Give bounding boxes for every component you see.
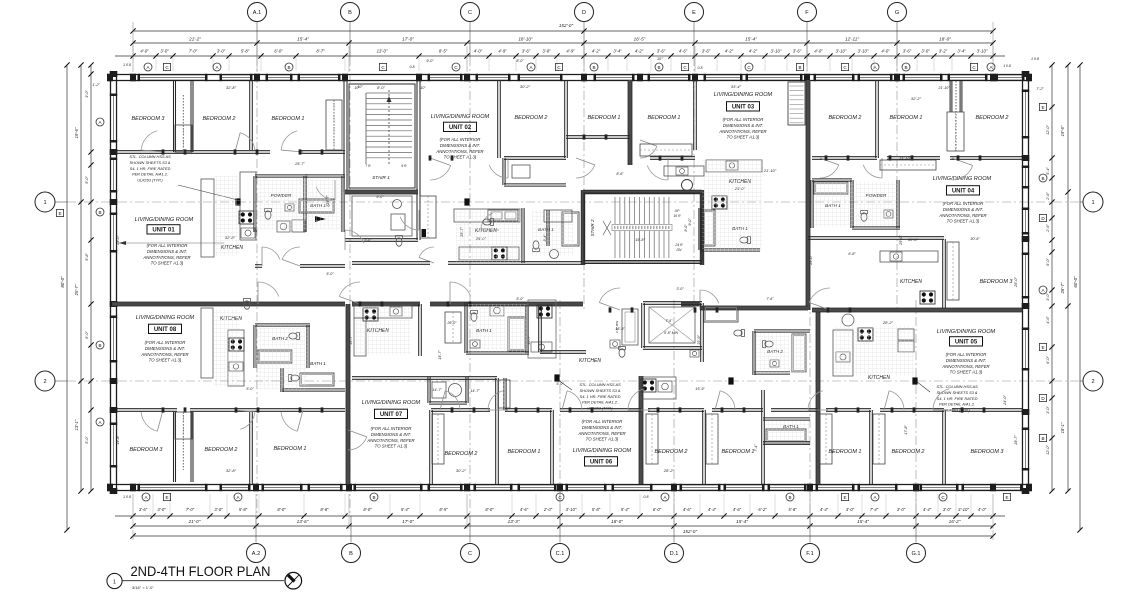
svg-text:ANNOTATIONS, REFER: ANNOTATIONS, REFER <box>718 129 766 134</box>
svg-text:7'-0": 7'-0" <box>186 507 195 512</box>
svg-text:4'-2": 4'-2" <box>749 49 758 54</box>
svg-text:LIVING/DINING ROOM: LIVING/DINING ROOM <box>362 400 421 406</box>
svg-text:32'-8": 32'-8" <box>226 85 237 90</box>
svg-text:24'-0": 24'-0" <box>809 255 813 266</box>
svg-text:6'-0": 6'-0" <box>1046 356 1050 364</box>
svg-text:9'-0": 9'-0" <box>426 59 434 63</box>
svg-text:5'-8": 5'-8" <box>239 507 248 512</box>
svg-text:ANNOTATIONS, REFER: ANNOTATIONS, REFER <box>577 431 625 436</box>
svg-text:5'-8" MIN: 5'-8" MIN <box>664 331 678 335</box>
svg-text:4'-0": 4'-0" <box>978 507 987 512</box>
svg-text:BEDROOM 2: BEDROOM 2 <box>202 116 235 122</box>
svg-text:E: E <box>843 495 846 500</box>
svg-text:4'-6": 4'-6" <box>683 507 692 512</box>
svg-text:8'-6": 8'-6" <box>616 172 624 176</box>
svg-text:18'-0": 18'-0" <box>611 519 623 524</box>
svg-text:2'-6": 2'-6" <box>1046 192 1050 201</box>
svg-text:ANNOTATIONS, REFER: ANNOTATIONS, REFER <box>435 149 483 154</box>
svg-text:BEDROOM 1: BEDROOM 1 <box>647 115 680 121</box>
svg-text:15'-8": 15'-8" <box>615 327 625 331</box>
svg-text:UNIT 02: UNIT 02 <box>449 125 472 131</box>
svg-text:4'-2": 4'-2" <box>635 49 644 54</box>
svg-text:C.1: C.1 <box>556 551 565 557</box>
svg-text:5'-8": 5'-8" <box>241 49 250 54</box>
svg-text:12'-11": 12'-11" <box>845 37 859 42</box>
svg-text:E: E <box>165 495 168 500</box>
svg-text:17'-8": 17'-8" <box>904 425 908 435</box>
svg-text:8'-7": 8'-7" <box>316 49 325 54</box>
svg-text:16'-5": 16'-5" <box>634 37 646 42</box>
svg-text:B: B <box>788 495 791 500</box>
svg-text:15'-4": 15'-4" <box>857 519 869 524</box>
svg-text:8'-0": 8'-0" <box>516 59 524 63</box>
svg-text:TO SHEET A1.3): TO SHEET A1.3) <box>149 358 182 363</box>
svg-text:ANNOTATIONS, REFER: ANNOTATIONS, REFER <box>140 352 188 357</box>
svg-text:5'-8": 5'-8" <box>592 507 601 512</box>
svg-text:33'-4": 33'-4" <box>731 84 742 89</box>
svg-text:F: F <box>805 10 809 16</box>
svg-text:28'-2": 28'-2" <box>882 320 894 325</box>
svg-text:C: C <box>468 551 472 557</box>
svg-text:21'-2": 21'-2" <box>188 37 201 42</box>
svg-text:25'-0": 25'-0" <box>1014 277 1018 288</box>
svg-text:10": 10" <box>357 85 363 89</box>
svg-text:ANNOTATIONS, REFER: ANNOTATIONS, REFER <box>941 364 989 369</box>
svg-text:6'-2": 6'-2" <box>758 507 767 512</box>
svg-text:6'-0": 6'-0" <box>1046 258 1050 266</box>
svg-text:3'-4": 3'-4" <box>957 49 966 54</box>
svg-text:LIVING/DINING ROOM: LIVING/DINING ROOM <box>573 448 632 454</box>
svg-text:(FOR ALL INTERIOR: (FOR ALL INTERIOR <box>723 117 764 122</box>
svg-text:UNIT 01: UNIT 01 <box>152 228 175 234</box>
svg-text:(FOR ALL INTERIOR: (FOR ALL INTERIOR <box>943 201 984 206</box>
svg-text:DIMENSIONS & INT.: DIMENSIONS & INT. <box>946 358 986 363</box>
svg-text:3'-10": 3'-10" <box>771 49 782 54</box>
svg-text:B: B <box>657 65 660 70</box>
svg-text:TO SHEET A1.3): TO SHEET A1.3) <box>444 155 477 160</box>
svg-text:4'-0": 4'-0" <box>814 49 823 54</box>
svg-text:4'-9": 4'-9" <box>498 49 507 54</box>
svg-text:(FOR ALL INTERIOR: (FOR ALL INTERIOR <box>946 352 987 357</box>
svg-text:5'-4": 5'-4" <box>621 507 630 512</box>
svg-text:B: B <box>1041 176 1044 181</box>
svg-text:1 0.8: 1 0.8 <box>1031 57 1039 61</box>
svg-text:15'-4": 15'-4" <box>736 519 748 524</box>
svg-text:LIVING/DINING ROOM: LIVING/DINING ROOM <box>135 217 194 223</box>
svg-text:0.8: 0.8 <box>644 495 649 499</box>
svg-text:STAIR 1: STAIR 1 <box>372 175 390 181</box>
svg-text:3'-6": 3'-6" <box>139 507 148 512</box>
svg-text:BEDROOM 1: BEDROOM 1 <box>889 115 922 121</box>
svg-text:16 R: 16 R <box>673 214 681 218</box>
svg-text:21'-10": 21'-10" <box>763 168 777 173</box>
svg-text:5'-8": 5'-8" <box>85 253 89 261</box>
svg-text:BEDROOM 1: BEDROOM 1 <box>507 449 540 455</box>
svg-text:BEDROOM 2: BEDROOM 2 <box>444 451 477 457</box>
svg-text:BATH 1: BATH 1 <box>310 361 326 366</box>
svg-text:4'-9": 4'-9" <box>566 49 575 54</box>
svg-text:8'-0": 8'-0" <box>277 507 286 512</box>
svg-text:KITCHEN: KITCHEN <box>579 358 601 364</box>
svg-text:BEDROOM 1: BEDROOM 1 <box>828 449 861 455</box>
svg-text:TO SHEET A1.3): TO SHEET A1.3) <box>586 437 619 442</box>
svg-text:21'-0": 21'-0" <box>188 519 201 524</box>
svg-text:E: E <box>1041 105 1044 110</box>
svg-text:5'-0": 5'-0" <box>376 195 384 199</box>
svg-text:4'-4": 4'-4" <box>923 507 932 512</box>
svg-text:8'-0": 8'-0" <box>485 507 494 512</box>
svg-text:TO SHEET A1.3): TO SHEET A1.3) <box>727 135 760 140</box>
svg-text:B: B <box>98 343 101 348</box>
svg-text:2'-6": 2'-6" <box>1046 224 1050 233</box>
svg-text:1 0.8: 1 0.8 <box>123 495 131 499</box>
svg-text:15'-4": 15'-4" <box>297 37 309 42</box>
svg-text:B: B <box>592 65 595 70</box>
svg-text:S4. 1 HR. FIRE RATED: S4. 1 HR. FIRE RATED <box>580 394 621 399</box>
svg-text:BEDROOM 1: BEDROOM 1 <box>273 446 306 452</box>
svg-text:A.2: A.2 <box>252 551 260 557</box>
svg-text:C: C <box>468 10 472 16</box>
svg-text:2: 2 <box>1091 379 1094 385</box>
svg-text:E: E <box>692 10 696 16</box>
svg-text:B: B <box>287 65 290 70</box>
svg-text:4'-6": 4'-6" <box>733 507 742 512</box>
svg-text:STL. COLUMN HSS AS: STL. COLUMN HSS AS <box>936 384 978 389</box>
svg-text:5'-0": 5'-0" <box>85 436 89 444</box>
svg-text:LIVING/DINING ROOM: LIVING/DINING ROOM <box>937 329 996 335</box>
svg-text:6'-8": 6'-8" <box>848 252 856 256</box>
svg-text:19'-8": 19'-8" <box>116 435 120 445</box>
svg-text:TO SHEET A1.3): TO SHEET A1.3) <box>950 370 983 375</box>
svg-text:4'-6": 4'-6" <box>679 49 688 54</box>
svg-text:BEDROOM 3: BEDROOM 3 <box>131 116 165 122</box>
svg-text:B: B <box>904 65 907 70</box>
svg-text:BEDROOM 1: BEDROOM 1 <box>721 449 754 455</box>
svg-text:5'-4": 5'-4" <box>1046 167 1050 175</box>
svg-text:7'-4": 7'-4" <box>754 444 758 452</box>
svg-text:5'-0": 5'-0" <box>516 297 524 301</box>
svg-text:3'-0": 3'-0" <box>921 49 930 54</box>
svg-text:2'-0": 2'-0" <box>543 507 553 512</box>
svg-text:7'-2": 7'-2" <box>1036 87 1044 91</box>
svg-text:8'-8": 8'-8" <box>320 507 329 512</box>
svg-text:SHOWN SHEETS S3 &: SHOWN SHEETS S3 & <box>936 390 977 395</box>
svg-text:3'-0": 3'-0" <box>214 507 223 512</box>
svg-text:28'-0": 28'-0" <box>446 321 457 325</box>
svg-text:4'-4": 4'-4" <box>708 507 717 512</box>
svg-text:A.1: A.1 <box>253 10 261 16</box>
svg-text:E: E <box>58 211 61 216</box>
svg-text:1 0.8: 1 0.8 <box>1003 64 1011 68</box>
svg-text:LIVING/DINING ROOM: LIVING/DINING ROOM <box>933 176 992 182</box>
svg-text:UNIT 03: UNIT 03 <box>732 105 755 111</box>
svg-text:1: 1 <box>113 580 116 586</box>
svg-text:BEDROOM 2: BEDROOM 2 <box>975 115 1008 121</box>
svg-text:4'-0": 4'-0" <box>881 49 890 54</box>
svg-text:F.1: F.1 <box>806 551 813 557</box>
svg-text:15'-7": 15'-7" <box>438 350 442 360</box>
svg-text:18'-0": 18'-0" <box>939 37 951 42</box>
svg-text:5'-8": 5'-8" <box>788 507 797 512</box>
svg-text:15'-7": 15'-7" <box>527 335 531 345</box>
svg-text:3'-4": 3'-4" <box>543 234 547 242</box>
svg-text:DIMENSIONS & INT.: DIMENSIONS & INT. <box>371 432 411 437</box>
svg-text:4'-0": 4'-0" <box>474 49 483 54</box>
svg-text:0.8: 0.8 <box>698 66 703 70</box>
svg-text:5'-0": 5'-0" <box>326 272 334 276</box>
svg-text:4'-6": 4'-6" <box>520 507 529 512</box>
svg-text:UNIT 06: UNIT 06 <box>590 460 613 466</box>
svg-text:D: D <box>582 10 586 16</box>
svg-text:12'-0": 12'-0" <box>1046 125 1050 135</box>
svg-text:28'-2": 28'-2" <box>663 468 675 473</box>
svg-text:5'-4": 5'-4" <box>401 507 410 512</box>
svg-text:15'-9": 15'-9" <box>695 387 705 391</box>
svg-text:24'-0": 24'-0" <box>1003 395 1007 406</box>
svg-text:25'-7": 25'-7" <box>326 195 330 206</box>
svg-text:3'-10": 3'-10" <box>836 49 847 54</box>
svg-text:4'-6": 4'-6" <box>1046 316 1050 324</box>
svg-text:7 R: 7 R <box>365 164 371 168</box>
svg-text:UP: UP <box>675 209 680 213</box>
svg-text:14'-7": 14'-7" <box>470 389 480 393</box>
svg-text:19'-6": 19'-6" <box>74 127 79 138</box>
svg-text:DIMENSIONS & INT.: DIMENSIONS & INT. <box>147 249 187 254</box>
svg-text:KITCHEN: KITCHEN <box>900 279 922 285</box>
svg-text:TO SHEET A1.3): TO SHEET A1.3) <box>151 261 184 266</box>
svg-text:17'-0": 17'-0" <box>402 37 414 42</box>
svg-text:DIMENSIONS & INT.: DIMENSIONS & INT. <box>943 207 983 212</box>
svg-text:DN: DN <box>677 248 682 252</box>
svg-text:4'-0": 4'-0" <box>140 49 149 54</box>
svg-text:2: 2 <box>43 379 46 385</box>
svg-text:3'-0": 3'-0" <box>85 90 89 98</box>
svg-text:17'-0": 17'-0" <box>402 519 414 524</box>
svg-text:3'-6": 3'-6" <box>793 49 802 54</box>
svg-text:(FOR ALL INTERIOR: (FOR ALL INTERIOR <box>582 419 623 424</box>
svg-text:3'-10": 3'-10" <box>977 49 988 54</box>
svg-text:3/16" = 1'-0": 3/16" = 1'-0" <box>132 585 154 590</box>
svg-text:8'-0": 8'-0" <box>363 507 372 512</box>
svg-text:8'-5": 8'-5" <box>439 507 448 512</box>
svg-text:5'-0": 5'-0" <box>246 387 254 391</box>
svg-text:3'-6": 3'-6" <box>702 49 711 54</box>
svg-text:UNIT 08: UNIT 08 <box>154 327 177 333</box>
svg-text:9'-0": 9'-0" <box>688 218 692 226</box>
svg-text:BEDROOM 3: BEDROOM 3 <box>970 449 1004 455</box>
svg-text:3'-4": 3'-4" <box>613 49 622 54</box>
svg-text:3'-0": 3'-0" <box>1046 293 1050 301</box>
svg-text:STAIR 2: STAIR 2 <box>590 219 595 236</box>
svg-text:15'-4": 15'-4" <box>745 37 757 42</box>
svg-text:60'-0": 60'-0" <box>1073 276 1078 288</box>
svg-text:3'-0": 3'-0" <box>157 507 166 512</box>
svg-text:7'-6": 7'-6" <box>666 319 674 323</box>
svg-text:3'-10": 3'-10" <box>958 507 969 512</box>
svg-text:(FOR ALL INTERIOR: (FOR ALL INTERIOR <box>147 243 188 248</box>
svg-text:5'-0": 5'-0" <box>556 382 564 386</box>
svg-text:19'-6": 19'-6" <box>1060 125 1065 136</box>
svg-text:PER DETAIL A/A1.2.: PER DETAIL A/A1.2. <box>132 172 168 177</box>
svg-text:(FOR ALL INTERIOR: (FOR ALL INTERIOR <box>145 340 186 345</box>
svg-text:7'-6": 7'-6" <box>766 297 774 301</box>
svg-text:DIMENSIONS & INT.: DIMENSIONS & INT. <box>440 143 480 148</box>
svg-text:3'-10": 3'-10" <box>858 49 869 54</box>
svg-text:13'-3": 13'-3" <box>508 519 520 524</box>
svg-text:E: E <box>1041 345 1044 350</box>
svg-text:21'-10": 21'-10" <box>898 157 911 161</box>
svg-text:(FOR ALL INTERIOR: (FOR ALL INTERIOR <box>440 137 481 142</box>
svg-text:16'-2": 16'-2" <box>949 519 961 524</box>
svg-text:PER DETAIL A/A1.2.: PER DETAIL A/A1.2. <box>582 400 618 405</box>
svg-text:3'-6": 3'-6" <box>657 49 666 54</box>
svg-text:24 R: 24 R <box>674 243 683 247</box>
svg-text:D.1: D.1 <box>670 551 679 557</box>
svg-text:3'-10": 3'-10" <box>566 507 577 512</box>
svg-text:9 R: 9 R <box>401 164 407 168</box>
svg-text:BEDROOM 1: BEDROOM 1 <box>271 116 304 122</box>
svg-text:ANNOTATIONS, REFER: ANNOTATIONS, REFER <box>142 255 190 260</box>
svg-text:152'-0": 152'-0" <box>683 529 698 534</box>
svg-text:13'-0": 13'-0" <box>377 49 388 54</box>
svg-text:32'-2": 32'-2" <box>911 96 922 101</box>
svg-text:TO SHEET A1.3): TO SHEET A1.3) <box>375 444 408 449</box>
svg-text:18'-1": 18'-1" <box>1060 422 1065 433</box>
svg-text:15'-7": 15'-7" <box>349 335 353 345</box>
svg-text:7'-0": 7'-0" <box>189 49 198 54</box>
svg-text:3'-2": 3'-2" <box>939 49 948 54</box>
svg-text:E: E <box>1005 495 1008 500</box>
svg-text:ANNOTATIONS, REFER: ANNOTATIONS, REFER <box>938 213 986 218</box>
svg-text:B: B <box>1041 436 1044 441</box>
svg-text:6'-0": 6'-0" <box>653 507 662 512</box>
svg-text:SHOWN SHEETS S3 &: SHOWN SHEETS S3 & <box>579 388 620 393</box>
svg-text:1'-2": 1'-2" <box>92 83 100 87</box>
svg-text:3'-0": 3'-0" <box>846 507 855 512</box>
svg-text:UNIT 07: UNIT 07 <box>380 412 403 418</box>
svg-text:1 0.8: 1 0.8 <box>123 63 131 67</box>
svg-text:DIMENSIONS & INT.: DIMENSIONS & INT. <box>145 346 185 351</box>
svg-text:2ND-4TH FLOOR PLAN: 2ND-4TH FLOOR PLAN <box>131 564 271 579</box>
svg-text:BEDROOM 2: BEDROOM 2 <box>654 449 687 455</box>
svg-text:LIVING/DINING ROOM: LIVING/DINING ROOM <box>714 92 773 98</box>
svg-text:18'-10": 18'-10" <box>518 37 533 42</box>
svg-text:S4. 1 HR. FIRE RATED: S4. 1 HR. FIRE RATED <box>937 396 978 401</box>
svg-text:32'-8": 32'-8" <box>226 468 237 473</box>
svg-text:15'-8": 15'-8" <box>635 238 645 242</box>
svg-text:BEDROOM 2: BEDROOM 2 <box>514 115 547 121</box>
svg-text:14'-7": 14'-7" <box>432 388 442 392</box>
svg-text:6'-0": 6'-0" <box>85 331 89 339</box>
svg-text:BEDROOM 3: BEDROOM 3 <box>129 447 163 453</box>
svg-text:12'-0": 12'-0" <box>1046 445 1050 455</box>
svg-text:13'-1": 13'-1" <box>74 419 79 430</box>
svg-text:BEDROOM 3: BEDROOM 3 <box>979 279 1013 285</box>
svg-text:B: B <box>798 65 801 70</box>
svg-text:DIMENSIONS & INT.: DIMENSIONS & INT. <box>582 425 622 430</box>
svg-text:BEDROOM 2: BEDROOM 2 <box>204 447 237 453</box>
svg-text:0.8: 0.8 <box>410 65 415 69</box>
svg-text:6'-0": 6'-0" <box>274 49 283 54</box>
svg-text:4'-4": 4'-4" <box>820 507 829 512</box>
svg-text:80'-0": 80'-0" <box>60 276 65 288</box>
svg-text:BEDROOM 2: BEDROOM 2 <box>891 449 924 455</box>
svg-text:G: G <box>895 10 899 16</box>
svg-text:30'-6": 30'-6" <box>908 237 919 242</box>
svg-text:3'-0": 3'-0" <box>676 287 684 291</box>
svg-text:PER DETAIL A/A1.2.: PER DETAIL A/A1.2. <box>939 402 975 407</box>
svg-text:UNIT 05: UNIT 05 <box>955 340 978 346</box>
svg-text:3'-0": 3'-0" <box>160 49 169 54</box>
svg-text:3'-0": 3'-0" <box>943 507 952 512</box>
svg-text:(FOR ALL INTERIOR: (FOR ALL INTERIOR <box>371 426 412 431</box>
svg-text:UL#263 (TYP.): UL#263 (TYP.) <box>137 178 163 183</box>
svg-text:3'-0": 3'-0" <box>1046 406 1050 414</box>
svg-text:10'": 10'" <box>657 57 664 61</box>
svg-text:28'-7": 28'-7" <box>1014 435 1018 446</box>
svg-text:13'-6": 13'-6" <box>297 519 309 524</box>
svg-text:STL. COLUMN HSS AS: STL. COLUMN HSS AS <box>129 154 171 159</box>
svg-text:1: 1 <box>1091 200 1094 206</box>
svg-text:8'-5": 8'-5" <box>439 49 448 54</box>
svg-text:5'-0": 5'-0" <box>85 176 89 184</box>
svg-text:3'-6": 3'-6" <box>903 49 912 54</box>
svg-text:4'-2": 4'-2" <box>725 49 734 54</box>
svg-text:5'-0": 5'-0" <box>364 238 372 242</box>
svg-text:SHOWN SHEETS S3 &: SHOWN SHEETS S3 & <box>129 160 170 165</box>
svg-text:B: B <box>372 495 375 500</box>
svg-text:B: B <box>348 10 352 16</box>
svg-text:G.1: G.1 <box>911 551 920 557</box>
svg-text:B: B <box>349 551 353 557</box>
svg-text:DIMENSIONS & INT.: DIMENSIONS & INT. <box>723 123 763 128</box>
svg-text:S4. 1 HR. FIRE RATED: S4. 1 HR. FIRE RATED <box>130 166 171 171</box>
svg-text:3'-0": 3'-0" <box>897 507 906 512</box>
svg-text:LIVING/DINING ROOM: LIVING/DINING ROOM <box>431 114 490 120</box>
svg-text:8'-0": 8'-0" <box>377 85 385 90</box>
svg-text:LIVING/DINING ROOM: LIVING/DINING ROOM <box>136 315 195 321</box>
svg-text:10": 10" <box>420 86 426 90</box>
svg-text:4'-2": 4'-2" <box>592 49 601 54</box>
svg-text:BEDROOM 2: BEDROOM 2 <box>828 115 861 121</box>
svg-text:ANNOTATIONS, REFER: ANNOTATIONS, REFER <box>366 438 414 443</box>
svg-text:30'-2": 30'-2" <box>456 468 467 473</box>
svg-text:25'-7": 25'-7" <box>74 284 79 296</box>
svg-text:30'-2": 30'-2" <box>520 84 531 89</box>
svg-text:1: 1 <box>43 200 46 206</box>
svg-text:3'-8": 3'-8" <box>542 49 551 54</box>
svg-text:21'-10": 21'-10" <box>937 86 950 90</box>
svg-text:25'-7": 25'-7" <box>294 162 305 166</box>
svg-text:STL. COLUMN HSS AS: STL. COLUMN HSS AS <box>579 382 621 387</box>
svg-text:3'-6": 3'-6" <box>522 49 531 54</box>
svg-text:28'-7": 28'-7" <box>1060 282 1065 294</box>
svg-text:UNIT 04: UNIT 04 <box>952 189 975 195</box>
svg-text:25'-0": 25'-0" <box>899 235 903 246</box>
svg-text:3'-0": 3'-0" <box>217 49 226 54</box>
svg-text:28'-0": 28'-0" <box>116 235 120 246</box>
svg-text:7'-4": 7'-4" <box>870 507 879 512</box>
svg-text:BEDROOM 1: BEDROOM 1 <box>587 115 620 121</box>
svg-text:B: B <box>98 210 101 215</box>
svg-text:30'-6": 30'-6" <box>970 237 980 241</box>
svg-text:152'-0": 152'-0" <box>559 23 574 28</box>
svg-text:TO SHEET A1.3): TO SHEET A1.3) <box>947 219 980 224</box>
